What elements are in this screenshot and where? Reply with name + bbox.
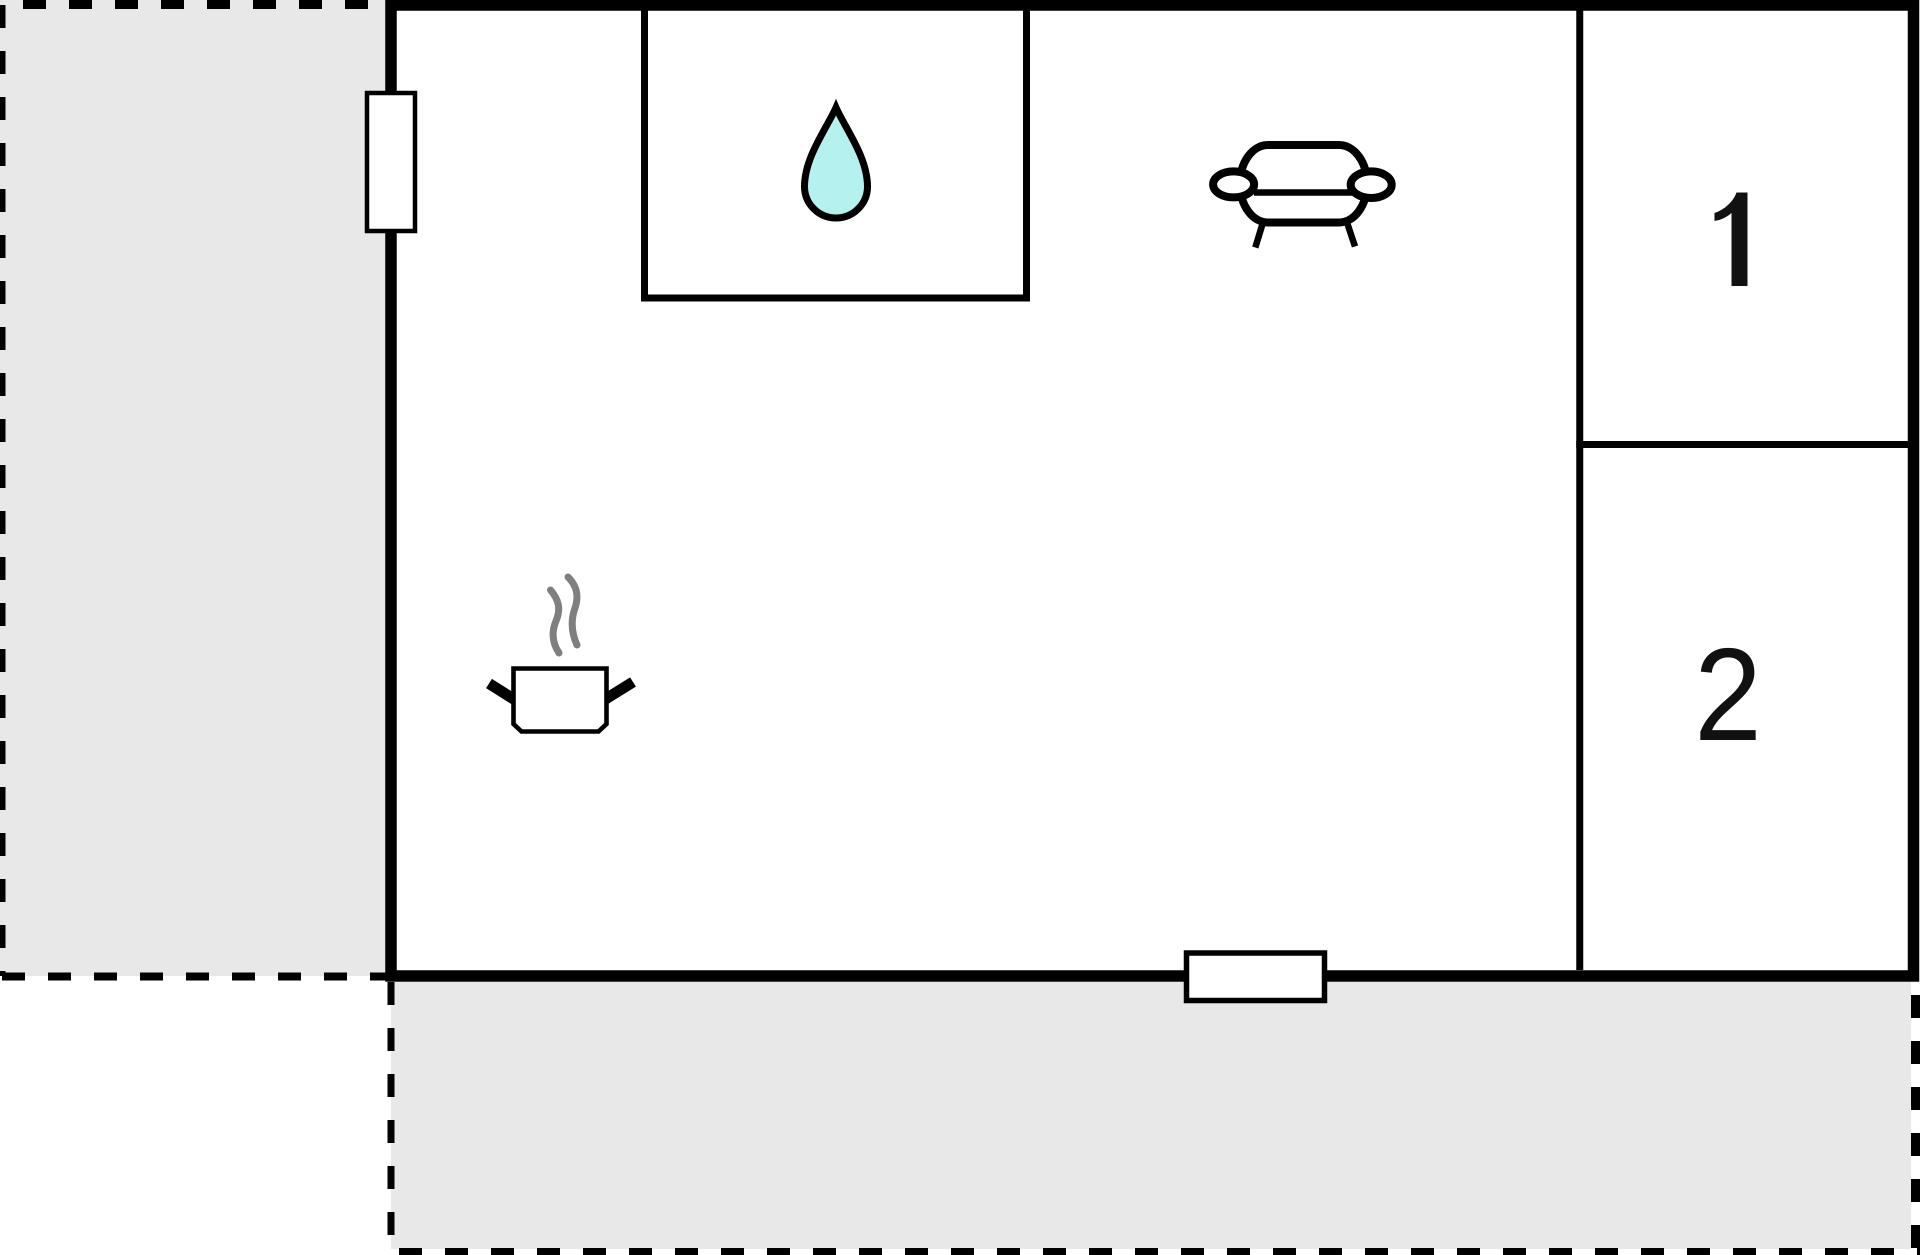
svg-text:2: 2 — [1694, 620, 1762, 768]
